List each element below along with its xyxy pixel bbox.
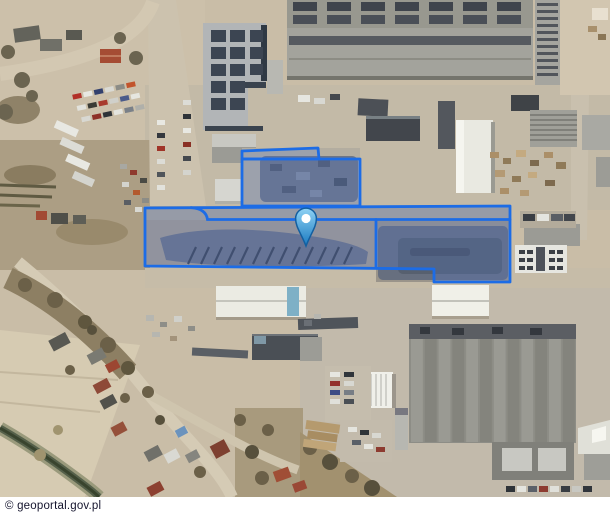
- map-canvas[interactable]: [0, 0, 610, 497]
- parcel-polygon-north[interactable]: [242, 159, 360, 206]
- dark-shed-roof: [366, 116, 420, 141]
- attribution-bar: © geoportal.gov.pl: [0, 497, 610, 515]
- parcel-polygon-north-sliver[interactable]: [242, 148, 319, 159]
- geoportal-map-view: © geoportal.gov.pl: [0, 0, 610, 515]
- small-hall-roof: [212, 134, 256, 147]
- attribution-text[interactable]: © geoportal.gov.pl: [0, 500, 101, 512]
- warehouse-a-teal-end: [287, 287, 299, 316]
- pin-dot: [301, 214, 310, 223]
